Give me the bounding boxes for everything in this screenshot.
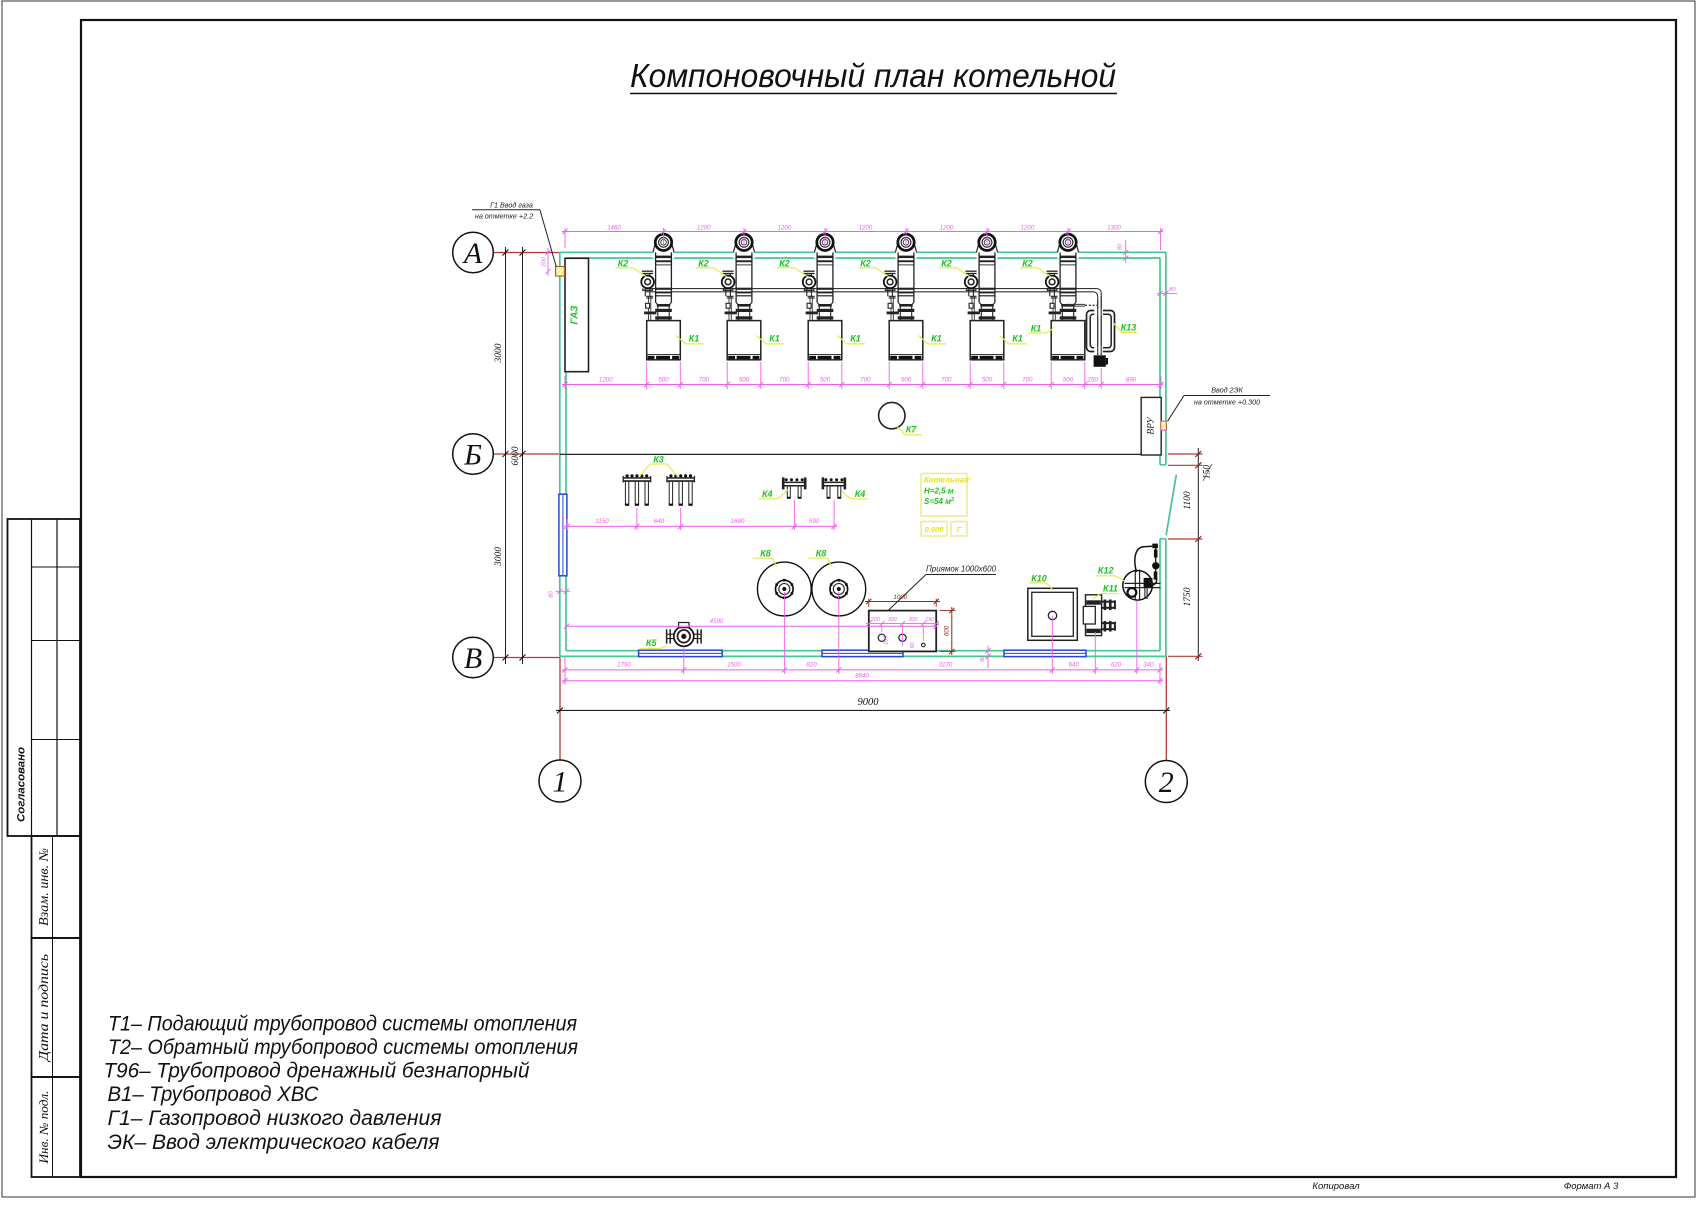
svg-text:К10: К10 — [1031, 573, 1047, 583]
svg-text:Г1 Ввод газа: Г1 Ввод газа — [490, 200, 533, 209]
svg-text:К11: К11 — [1103, 584, 1118, 594]
svg-text:Б: Б — [463, 439, 482, 472]
svg-text:820: 820 — [806, 661, 817, 668]
svg-text:на отметке +2.2: на отметке +2.2 — [475, 211, 533, 220]
svg-text:340: 340 — [1143, 661, 1154, 668]
svg-text:620: 620 — [1111, 661, 1122, 668]
svg-text:Н=2,5 м: Н=2,5 м — [924, 486, 954, 495]
svg-text:80: 80 — [1118, 243, 1124, 250]
svg-text:700: 700 — [779, 377, 790, 384]
svg-text:К1: К1 — [1031, 323, 1042, 333]
svg-text:А: А — [462, 237, 483, 270]
svg-text:640: 640 — [1069, 661, 1080, 668]
svg-text:К2: К2 — [698, 259, 709, 269]
svg-text:К7: К7 — [906, 425, 918, 435]
svg-text:9000: 9000 — [858, 697, 880, 708]
svg-text:8840: 8840 — [855, 672, 869, 679]
svg-text:700: 700 — [941, 377, 952, 384]
svg-text:К8: К8 — [816, 548, 827, 558]
svg-text:500: 500 — [820, 377, 831, 384]
svg-text:700: 700 — [1022, 377, 1033, 384]
svg-text:Т96– Трубопровод дренажный без: Т96– Трубопровод дренажный безнапорный — [104, 1060, 530, 1083]
svg-text:190: 190 — [925, 617, 934, 623]
svg-text:К4: К4 — [855, 489, 866, 499]
svg-text:3000: 3000 — [494, 343, 504, 363]
svg-text:2: 2 — [1159, 766, 1174, 799]
svg-text:3000: 3000 — [494, 547, 504, 567]
svg-text:1200: 1200 — [778, 224, 792, 231]
svg-text:Формат А 3: Формат А 3 — [1564, 1181, 1619, 1192]
svg-text:К2: К2 — [860, 259, 871, 269]
svg-text:1460: 1460 — [607, 224, 621, 231]
svg-text:ЭК– Ввод электрического кабеля: ЭК– Ввод электрического кабеля — [108, 1131, 440, 1154]
svg-text:90: 90 — [910, 643, 916, 649]
svg-text:Котельная:: Котельная: — [924, 476, 972, 485]
svg-text:К8: К8 — [760, 548, 771, 558]
svg-text:640: 640 — [654, 518, 665, 525]
svg-text:890: 890 — [1126, 377, 1137, 384]
svg-text:700: 700 — [860, 377, 871, 384]
svg-text:500: 500 — [1063, 377, 1074, 384]
svg-text:Ввод 2ЭК: Ввод 2ЭК — [1211, 385, 1243, 394]
svg-text:Приямок 1000х600: Приямок 1000х600 — [926, 565, 997, 574]
svg-text:К1: К1 — [1012, 333, 1023, 343]
svg-text:1200: 1200 — [697, 224, 711, 231]
svg-text:250: 250 — [1087, 377, 1099, 384]
svg-text:Г: Г — [957, 525, 962, 534]
svg-text:600: 600 — [943, 625, 950, 636]
svg-text:3170: 3170 — [939, 661, 953, 668]
svg-text:1500: 1500 — [727, 661, 741, 668]
svg-text:1100: 1100 — [1183, 491, 1193, 510]
svg-text:700: 700 — [699, 377, 710, 384]
svg-text:1: 1 — [553, 766, 568, 799]
svg-text:ВРУ: ВРУ — [1147, 416, 1157, 435]
svg-text:Копировал: Копировал — [1312, 1181, 1360, 1192]
svg-text:300: 300 — [888, 617, 897, 623]
svg-text:0.000: 0.000 — [925, 525, 945, 534]
svg-text:1200: 1200 — [940, 224, 954, 231]
svg-text:1300: 1300 — [1107, 224, 1121, 231]
svg-text:1150: 1150 — [595, 518, 609, 525]
svg-text:К4: К4 — [762, 489, 773, 499]
svg-text:6000: 6000 — [511, 446, 521, 465]
svg-text:К5: К5 — [646, 638, 658, 648]
svg-text:К2: К2 — [941, 259, 952, 269]
svg-text:К1: К1 — [931, 333, 942, 343]
svg-text:500: 500 — [658, 377, 669, 384]
svg-text:Инв. № подл.: Инв. № подл. — [37, 1091, 51, 1165]
svg-text:200: 200 — [870, 617, 880, 623]
svg-text:К1: К1 — [850, 333, 861, 343]
svg-text:1000: 1000 — [893, 594, 907, 601]
svg-text:Согласовано: Согласовано — [16, 747, 28, 822]
svg-text:К1: К1 — [689, 333, 700, 343]
svg-text:200: 200 — [541, 256, 547, 267]
svg-text:ГАЗ: ГАЗ — [569, 305, 580, 324]
svg-text:Взам. инв. №: Взам. инв. № — [36, 848, 51, 926]
svg-text:Т2– Обратный трубопровод систе: Т2– Обратный трубопровод системы отоплен… — [108, 1036, 578, 1059]
svg-text:В: В — [464, 642, 482, 675]
svg-text:К1: К1 — [769, 333, 780, 343]
svg-text:К12: К12 — [1098, 565, 1114, 575]
svg-text:80: 80 — [1169, 287, 1176, 293]
svg-text:500: 500 — [739, 377, 750, 384]
svg-text:В1– Трубопровод ХВС: В1– Трубопровод ХВС — [108, 1083, 320, 1106]
svg-text:К2: К2 — [1022, 259, 1033, 269]
svg-text:К2: К2 — [618, 259, 629, 269]
svg-text:590: 590 — [809, 518, 820, 525]
svg-text:Компоновочный план котельной: Компоновочный план котельной — [630, 57, 1116, 94]
svg-text:1200: 1200 — [1021, 224, 1035, 231]
svg-text:S=54 м2: S=54 м2 — [924, 497, 954, 506]
svg-text:К2: К2 — [779, 259, 790, 269]
svg-text:500: 500 — [982, 377, 993, 384]
svg-text:Дата и подпись: Дата и подпись — [37, 954, 52, 1063]
svg-text:300: 300 — [908, 617, 917, 623]
svg-text:1200: 1200 — [859, 224, 873, 231]
svg-text:Т1– Подающий трубопровод систе: Т1– Подающий трубопровод системы отоплен… — [108, 1013, 577, 1036]
svg-text:500: 500 — [901, 377, 912, 384]
svg-text:1200: 1200 — [599, 377, 613, 384]
svg-text:К13: К13 — [1121, 323, 1137, 333]
svg-text:200: 200 — [884, 636, 890, 646]
svg-text:4590: 4590 — [710, 618, 724, 625]
svg-text:1750: 1750 — [617, 661, 631, 668]
svg-text:80: 80 — [549, 591, 555, 598]
svg-text:Г1– Газопровод низкого давлени: Г1– Газопровод низкого давления — [108, 1107, 442, 1130]
svg-text:1750: 1750 — [1183, 587, 1193, 606]
svg-text:1690: 1690 — [731, 518, 745, 525]
svg-text:К3: К3 — [653, 454, 664, 464]
svg-text:на отметке +0.300: на отметке +0.300 — [1194, 398, 1260, 407]
svg-text:80: 80 — [980, 655, 986, 662]
